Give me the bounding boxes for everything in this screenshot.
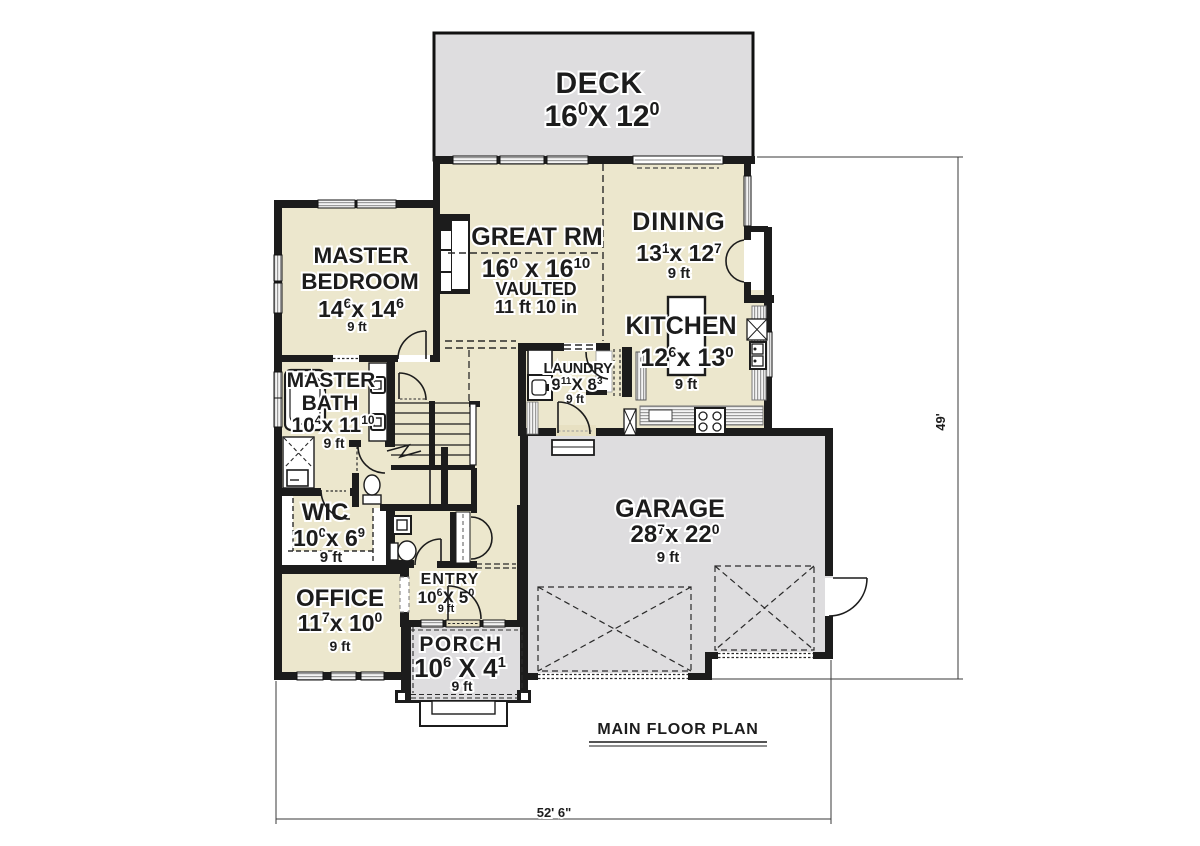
- svg-text:100x 69: 100x 69: [293, 525, 365, 551]
- svg-text:MAIN FLOOR PLAN: MAIN FLOOR PLAN: [597, 721, 758, 738]
- svg-text:117x 100: 117x 100: [298, 609, 383, 636]
- svg-text:52' 6": 52' 6": [537, 805, 572, 820]
- svg-text:MASTER: MASTER: [287, 369, 376, 392]
- svg-text:287x 220: 287x 220: [630, 521, 719, 548]
- svg-text:BEDROOM: BEDROOM: [301, 269, 419, 294]
- svg-text:OFFICE: OFFICE: [296, 585, 384, 612]
- svg-text:BATH: BATH: [302, 392, 359, 415]
- svg-text:9 ft: 9 ft: [452, 678, 473, 694]
- svg-text:11 ft 10 in: 11 ft 10 in: [495, 297, 577, 317]
- svg-text:9 ft: 9 ft: [438, 603, 455, 615]
- svg-text:GREAT RM: GREAT RM: [471, 223, 602, 251]
- svg-text:9 ft: 9 ft: [675, 376, 698, 393]
- svg-text:VAULTED: VAULTED: [496, 279, 577, 299]
- svg-text:9 ft: 9 ft: [668, 265, 691, 282]
- svg-text:9 ft: 9 ft: [657, 549, 680, 566]
- svg-text:DINING: DINING: [632, 208, 726, 236]
- svg-text:9 ft: 9 ft: [347, 319, 367, 334]
- svg-text:WIC: WIC: [302, 499, 349, 526]
- svg-text:146x 146: 146x 146: [318, 295, 404, 322]
- svg-text:131x 127: 131x 127: [636, 240, 721, 266]
- svg-text:9 ft: 9 ft: [324, 435, 345, 451]
- svg-text:160X 120: 160X 120: [544, 99, 659, 133]
- svg-text:49': 49': [933, 413, 948, 431]
- svg-text:KITCHEN: KITCHEN: [625, 312, 736, 340]
- svg-text:MASTER: MASTER: [314, 243, 409, 268]
- svg-text:9 ft: 9 ft: [330, 638, 351, 654]
- svg-text:GARAGE: GARAGE: [615, 495, 725, 523]
- svg-text:9 ft: 9 ft: [320, 549, 343, 566]
- svg-text:126x 130: 126x 130: [640, 344, 733, 372]
- svg-text:DECK: DECK: [555, 67, 642, 100]
